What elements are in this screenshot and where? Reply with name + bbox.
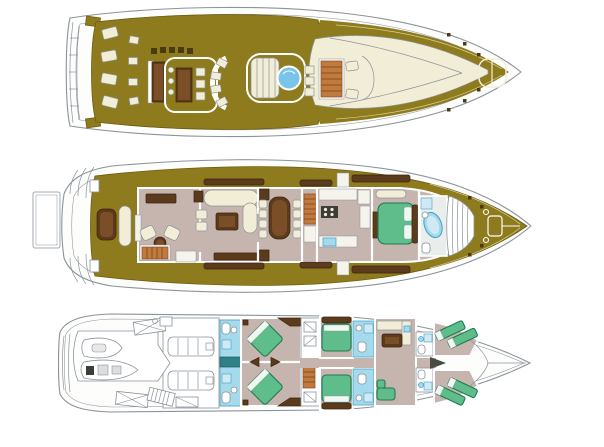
partition-cabinet bbox=[258, 189, 269, 200]
stove bbox=[321, 206, 338, 218]
toilet bbox=[358, 342, 366, 352]
engine bbox=[168, 337, 214, 356]
guest-bathroom bbox=[353, 321, 374, 357]
sun-deck-plan: Sun deck / flybridge bbox=[66, 7, 521, 136]
closet bbox=[304, 336, 316, 346]
master-sofa bbox=[376, 190, 406, 198]
shower bbox=[421, 198, 432, 209]
crew-cabin bbox=[434, 370, 478, 409]
helm-seat bbox=[345, 89, 358, 100]
shower bbox=[424, 334, 432, 342]
headboard bbox=[412, 205, 418, 243]
tv-sideboard bbox=[214, 253, 264, 260]
galley-counter bbox=[319, 189, 357, 200]
crew-cabin bbox=[434, 317, 478, 356]
toilet bbox=[422, 243, 430, 253]
flybridge-stairs bbox=[319, 59, 344, 99]
yacht-ga-diagram: Sun deck / flybridge bbox=[0, 0, 604, 447]
toilet bbox=[222, 392, 230, 403]
shower bbox=[364, 393, 373, 402]
bar-stool bbox=[168, 67, 174, 73]
closet bbox=[304, 392, 316, 402]
sink bbox=[231, 327, 237, 333]
bar-stool bbox=[168, 89, 174, 95]
sink bbox=[356, 395, 362, 401]
crew-counter bbox=[402, 321, 411, 345]
side-gate bbox=[90, 180, 99, 192]
closet bbox=[304, 322, 316, 332]
crew-bathroom bbox=[416, 368, 433, 392]
ottoman bbox=[196, 222, 207, 231]
nightstand bbox=[243, 400, 248, 405]
vip-bathrooms bbox=[220, 320, 241, 406]
crew-bench bbox=[377, 388, 395, 400]
main-deck-plan: Main deck bbox=[33, 160, 531, 293]
side-deck-door bbox=[337, 173, 349, 187]
aft-deck-bench bbox=[119, 206, 131, 246]
toilet bbox=[222, 323, 230, 334]
shower bbox=[222, 340, 231, 349]
day-head bbox=[304, 226, 316, 242]
crew-bathroom bbox=[416, 332, 433, 356]
toilet bbox=[358, 374, 366, 384]
cabinet bbox=[194, 191, 203, 202]
deck-plans-svg: Sun deck / flybridge bbox=[0, 0, 604, 447]
sideboard bbox=[146, 194, 176, 203]
sink bbox=[356, 325, 362, 331]
side-deck-door bbox=[337, 261, 349, 275]
sink bbox=[422, 212, 428, 218]
jacuzzi bbox=[278, 67, 301, 90]
sliding-door bbox=[135, 215, 141, 241]
nightstand bbox=[243, 320, 248, 325]
engine bbox=[168, 371, 214, 390]
hatch bbox=[176, 397, 198, 407]
chaise bbox=[243, 203, 257, 233]
lower-deck-plan: Lower deck bbox=[59, 314, 531, 412]
galley-cabinet bbox=[360, 206, 370, 228]
shower bbox=[364, 324, 373, 333]
ottoman bbox=[196, 210, 207, 219]
sink bbox=[231, 387, 237, 393]
swim-platform bbox=[33, 192, 60, 248]
shower bbox=[424, 382, 432, 390]
lounge-bar bbox=[140, 245, 170, 260]
toilet bbox=[418, 370, 425, 379]
tender-garage bbox=[74, 331, 171, 381]
side-gate bbox=[90, 260, 99, 272]
toilet bbox=[418, 345, 425, 354]
headboard bbox=[322, 317, 351, 323]
stowage-crate bbox=[115, 391, 148, 407]
crew-bench bbox=[377, 380, 385, 388]
bar-stool bbox=[168, 78, 174, 84]
guest-bathroom bbox=[353, 369, 374, 405]
helm-seat bbox=[345, 61, 358, 72]
shower bbox=[222, 374, 231, 383]
crew-sink bbox=[404, 326, 410, 332]
guest-cabin bbox=[320, 316, 353, 358]
partition-cabinet bbox=[258, 250, 269, 261]
sink bbox=[419, 383, 424, 388]
sink bbox=[419, 337, 424, 342]
tank-divider bbox=[220, 357, 241, 367]
fridge bbox=[358, 190, 370, 204]
crew-mess bbox=[375, 318, 416, 406]
lobby-floor bbox=[176, 251, 196, 262]
headboard bbox=[322, 403, 351, 409]
galley-sink bbox=[323, 238, 336, 246]
master-bathroom bbox=[420, 196, 447, 256]
guest-cabin bbox=[320, 368, 353, 410]
helm-steps bbox=[305, 66, 314, 96]
